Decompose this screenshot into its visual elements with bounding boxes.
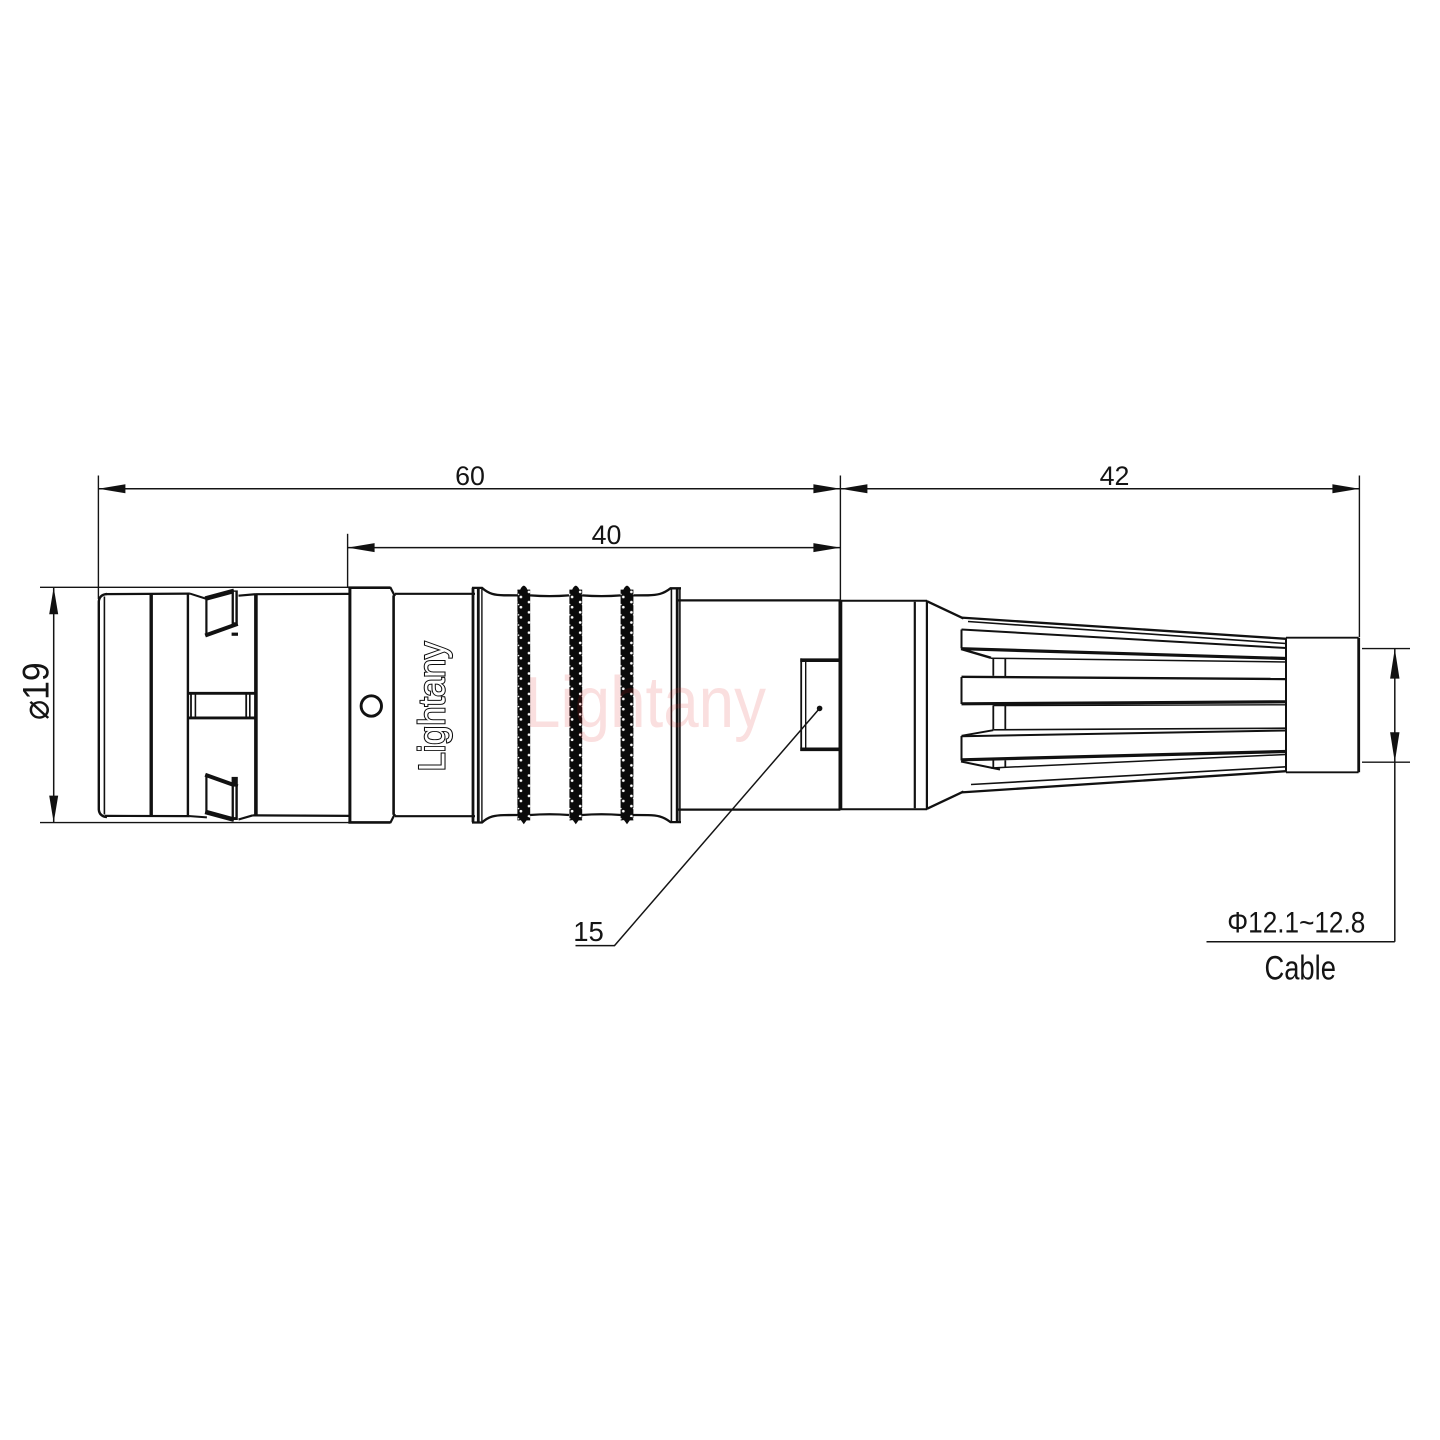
svg-text:Lightany: Lightany [525,663,766,743]
svg-text:Lightany: Lightany [412,641,453,771]
svg-text:⌀19: ⌀19 [16,663,57,721]
svg-text:42: 42 [1100,461,1130,491]
svg-text:15: 15 [573,916,604,947]
svg-text:60: 60 [455,461,485,491]
svg-text:Cable: Cable [1264,950,1336,988]
svg-text:Φ12.1~12.8: Φ12.1~12.8 [1227,907,1365,940]
svg-text:40: 40 [592,520,622,550]
